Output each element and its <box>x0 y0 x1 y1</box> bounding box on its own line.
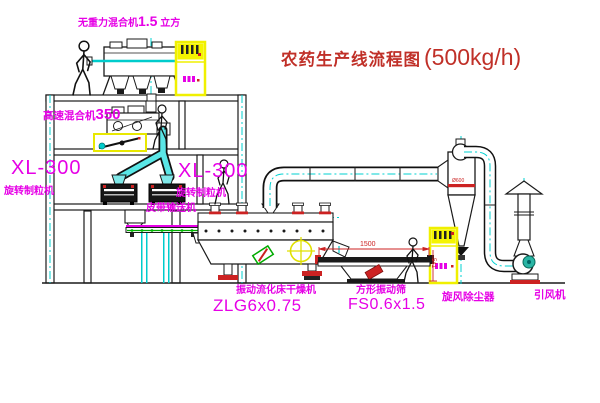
dryer-exhaust-duct <box>262 160 448 213</box>
label-dryer-name: 振动流化床干燥机 <box>236 286 316 296</box>
granulator-left <box>101 175 137 205</box>
fluid-bed-dryer <box>198 203 333 280</box>
belt-conveyor <box>126 226 204 283</box>
label-zero-gravity-mixer: 无重力混合机1.5 立方 <box>78 13 180 31</box>
exhaust-stack <box>506 181 542 256</box>
label-belt-conveyor: 皮带输送机 <box>146 204 196 214</box>
person-icon <box>73 41 90 95</box>
title-capacity: (500kg/h) <box>424 44 521 71</box>
flow-diagram-canvas: 农药生产线流程图 (500kg/h) 无重力混合机1.5 立方 高速混合机350… <box>0 0 600 403</box>
label-granulator-right-name: 旋转制粒机 <box>176 189 226 199</box>
dim-sieve-height: 541 <box>430 258 436 268</box>
dim-sieve-length: 1500 <box>360 241 376 248</box>
control-cabinet-cyclone <box>430 228 457 283</box>
label-cyclone-dia: Ø600 <box>452 178 464 184</box>
label-dryer-model: ZLG6x0.75 <box>213 297 302 314</box>
mixer-feed-pipe <box>146 101 156 112</box>
title-text: 农药生产线流程图 <box>281 46 421 70</box>
control-cabinet-top <box>176 42 205 95</box>
label-sieve-name: 方形振动筛 <box>356 286 406 296</box>
induced-draft-fan <box>510 254 540 284</box>
label-cyclone: 旋风除尘器 <box>442 292 495 303</box>
page-title: 农药生产线流程图 (500kg/h) <box>281 44 521 71</box>
label-granulator-left-name: 旋转制粒机 <box>4 187 54 197</box>
label-sieve-model: FS0.6x1.5 <box>348 297 425 313</box>
label-granulator-right-model: XL-300 <box>178 161 249 181</box>
label-high-speed-mixer: 高速混合机350 <box>43 106 121 124</box>
label-granulator-left-model: XL-300 <box>11 158 82 178</box>
label-fan: 引风机 <box>534 290 566 301</box>
